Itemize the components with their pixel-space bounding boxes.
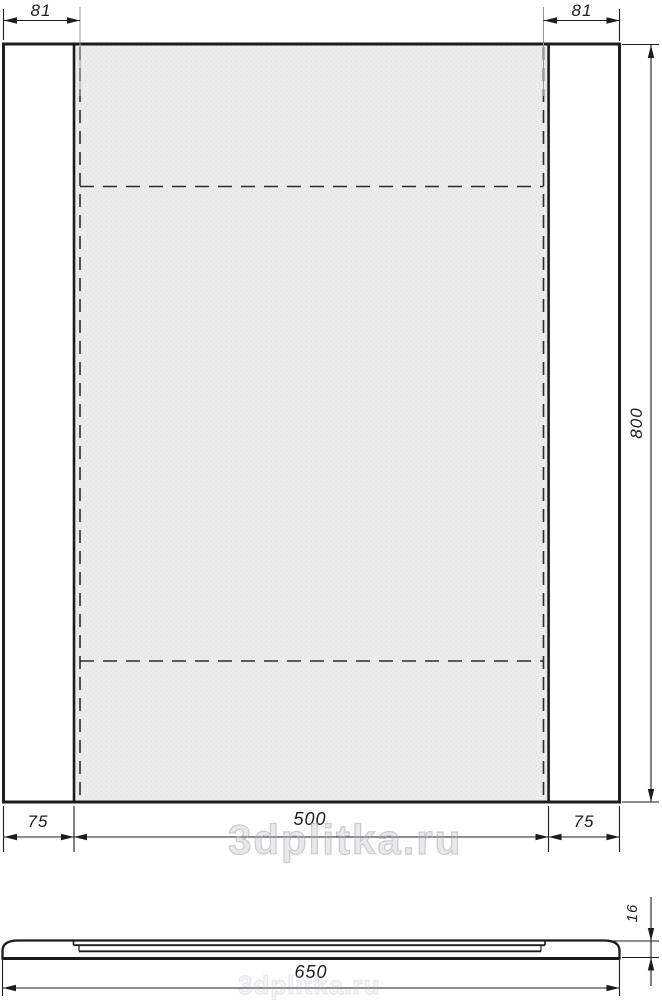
arrowhead [607,985,620,991]
dim-label-top-left: 81 [11,1,71,21]
technical-drawing-page: 81 81 800 75 500 75 650 16 3dplitka.ru 3… [0,0,662,1001]
arrowhead [74,834,87,840]
arrowhead [4,834,17,840]
arrowhead [3,985,16,991]
arrowhead [648,45,654,58]
arrowhead [648,928,654,941]
arrowhead [648,958,654,971]
arrowhead [648,789,654,802]
arrowhead [607,834,620,840]
watermark-text-faint: 3dplitka.ru [238,970,380,1001]
arrowhead [61,834,74,840]
mirror-area [74,45,548,802]
side-view [3,941,620,959]
side-view-outline [3,941,620,959]
dim-label-height: 800 [627,393,647,453]
dim-label-bottom-left: 75 [8,812,68,832]
dim-label-top-right: 81 [552,1,612,21]
front-view [4,44,620,802]
dim-label-bottom-right: 75 [554,812,614,832]
dim-label-side-thickness: 16 [623,883,643,943]
watermark-text: 3dplitka.ru [228,816,462,864]
arrowhead [536,834,549,840]
arrowhead [549,834,562,840]
